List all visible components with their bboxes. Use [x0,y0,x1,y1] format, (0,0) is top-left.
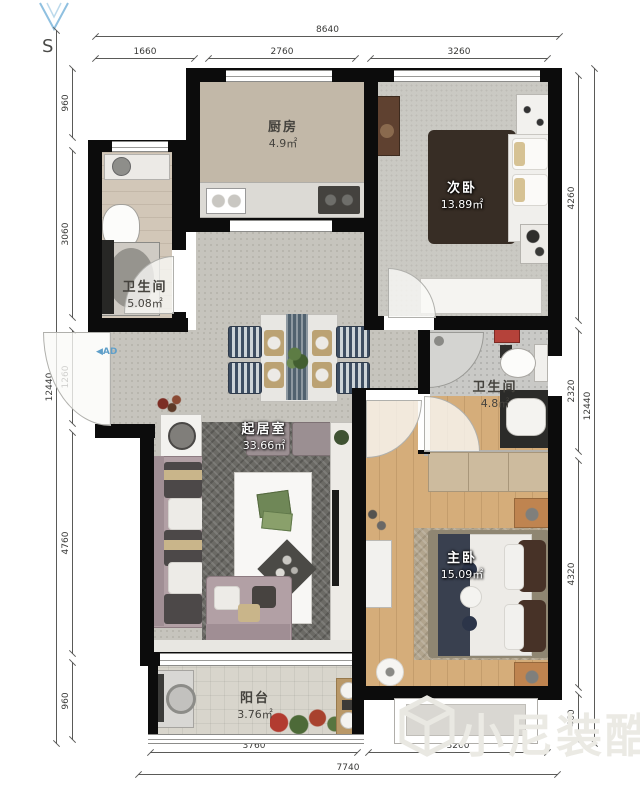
wall-segment [352,388,366,688]
round-cushion [460,586,482,608]
pillow [504,604,524,650]
room-label-bathroom-ensuite: 卫生间 4.8㎡ [455,380,535,411]
room-label-bathroom-main: 卫生间 5.08㎡ [105,280,185,311]
dim-right-seg-1: 4260 [578,75,579,321]
bathroom-main-sink [112,157,131,176]
washing-machine-door [166,684,196,714]
bedroom-bench [420,278,542,314]
sofa-pillow [214,586,240,610]
sofa-cushion [164,594,202,624]
dresser [516,94,552,138]
dim-right-seg-3: 4320 [578,460,579,688]
dining-chair [228,326,262,358]
compass-label: S [42,36,53,57]
placemat [264,362,284,388]
sofa-throw [164,470,202,480]
dim-right-total: 12440 [594,68,595,744]
kitchen-sliding-door [230,220,332,232]
kitchen-sink [206,188,246,214]
sofa-cushion [164,462,202,498]
ensuite-window [548,356,562,396]
master-door-gap [366,390,418,400]
room-label-master-bedroom: 主卧 15.09㎡ [422,551,502,582]
pillow-accent [514,142,525,166]
shower-drain [434,336,444,346]
balcony-sliding-door [160,653,352,666]
bedroom-window [394,70,540,82]
toilet-tank [534,344,548,382]
room-label-balcony: 阳台 3.76㎡ [215,691,295,722]
room-label-kitchen: 厨房 4.9㎡ [243,120,323,151]
wall-segment [148,664,158,740]
dim-top-seg-2: 2760 [208,58,356,59]
placemat [264,330,284,356]
sofa-pillow [168,562,204,594]
room-label-living-room: 起居室 33.66㎡ [224,422,304,453]
makeup-dresser [364,540,392,608]
dim-top-total: 8640 [95,36,560,37]
desk-stool [380,124,394,138]
books [261,510,293,531]
dresser-items [366,506,388,534]
room-label-second-bedroom: 次卧 13.89㎡ [422,181,502,212]
bathroom-accessory [494,328,520,343]
dim-right-seg-2: 2320 [578,330,579,452]
sofa-throw [238,604,260,622]
bathroom-window [112,141,168,152]
table-lamp [168,422,196,450]
dim-top-seg-1: 1660 [95,58,195,59]
wall-segment [140,424,154,666]
dim-bottom-seg-1: 3760 [150,752,358,753]
sofa-throw [164,540,202,550]
kitchen-stove [318,186,360,214]
pillow [504,544,524,590]
toilet [500,348,536,378]
sofa-pillow [168,498,204,530]
wall-segment [364,68,378,330]
corridor-floor [364,330,422,394]
cabinet-plant [334,430,349,445]
balcony-railing-window [148,734,364,744]
entry-ad-marker: ◀AD [96,347,117,357]
table-plant [285,342,309,372]
round-cushion [462,616,477,631]
kitchen-window [226,70,332,82]
dim-bottom-total: 7740 [138,774,558,775]
pillow-accent [514,178,525,202]
tv [332,490,339,586]
dim-top-seg-3: 3260 [370,58,548,59]
wardrobe [428,452,552,492]
dining-chair [336,326,370,358]
floor-flower [376,658,404,686]
dim-left-seg-5: 960 [72,662,73,740]
wall-segment [88,140,102,332]
dim-left-seg-2: 3060 [72,150,73,318]
placemat [312,330,332,356]
floor-plan: S [0,0,640,807]
watermark-text: 小尼装酷 [458,700,640,766]
dim-left-seg-4: 4760 [72,432,73,654]
bedroom-door-gap [384,316,434,330]
nightstand [514,498,550,528]
dim-left-seg-1: 960 [72,68,73,138]
dining-chair [228,362,262,394]
watermark-cube-logo [396,694,458,760]
placemat [312,362,332,388]
